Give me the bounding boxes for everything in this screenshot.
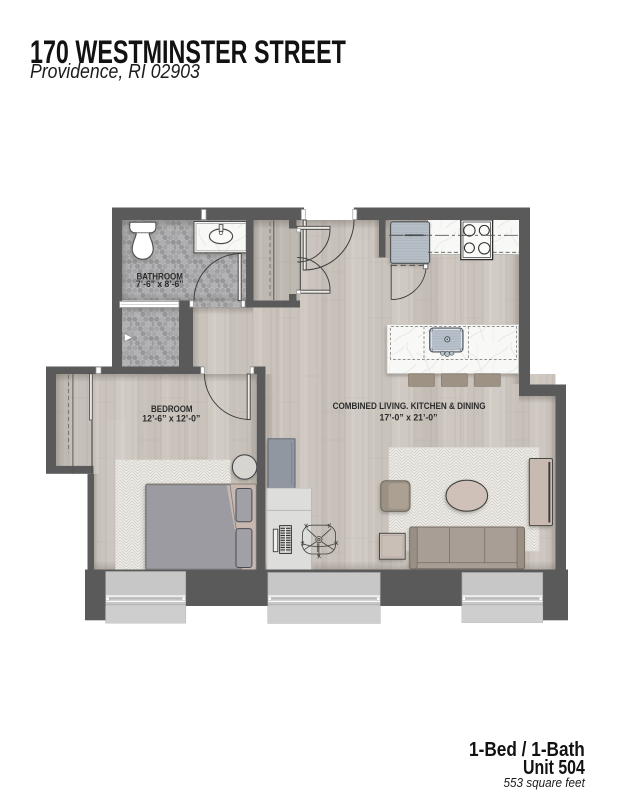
svg-text:7’-6” x 8’-6”: 7’-6” x 8’-6” (136, 278, 184, 289)
svg-text:12’-6” x 12’-0”: 12’-6” x 12’-0” (142, 413, 200, 424)
svg-text:17’-0” x 21’-0”: 17’-0” x 21’-0” (380, 412, 438, 423)
svg-text:COMBINED LIVING. KITCHEN & DIN: COMBINED LIVING. KITCHEN & DINING (333, 401, 486, 412)
